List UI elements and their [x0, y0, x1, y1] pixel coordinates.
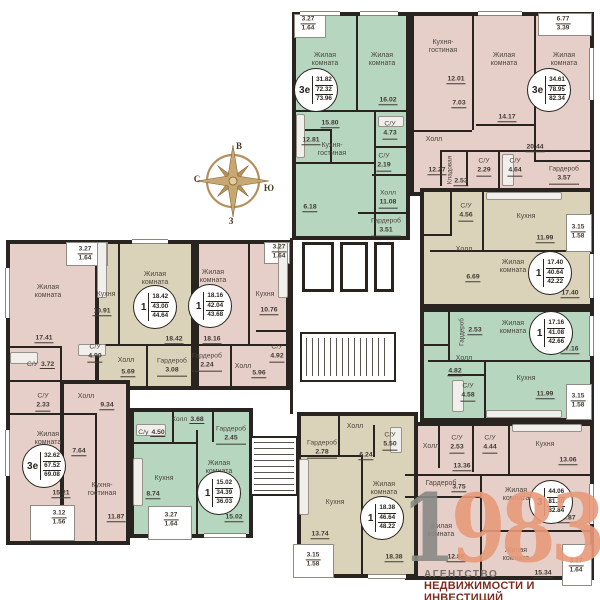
room-area: 15.21	[51, 489, 70, 498]
window	[478, 11, 522, 16]
elevator-shaft	[340, 242, 368, 292]
balcony-area-top: 3.12	[52, 509, 67, 518]
room-label: Гардероб2.24	[192, 353, 222, 372]
balcony-area-top: 3.27	[164, 511, 179, 520]
area-total: 42.66	[547, 337, 565, 347]
apartment-type: 1	[141, 302, 147, 313]
area-usable: 43.00	[151, 302, 169, 312]
wall	[146, 346, 148, 390]
room-name: Холл	[171, 416, 187, 423]
room-area: 16.02	[378, 96, 397, 105]
room-label: С/У3.72	[27, 361, 55, 369]
balcony-area-bottom: 1.58	[571, 233, 586, 241]
room-name: Гардероб	[307, 440, 337, 449]
room-area: 4.50	[150, 429, 165, 437]
area-total: 73.96	[315, 94, 333, 104]
balcony-area-top: 3.27	[569, 557, 584, 566]
balcony-area: 3.271.64	[569, 557, 584, 574]
room-name: С/У	[449, 435, 464, 444]
area-usable: 42.04	[206, 301, 224, 311]
apartment-type: 1	[537, 328, 543, 339]
room-label: Жилая комната	[358, 52, 406, 68]
balcony-area: 3.151.58	[306, 551, 321, 568]
wall	[405, 496, 482, 498]
room-name: Гардероб	[216, 426, 246, 435]
room-label: Жилая комната	[360, 481, 408, 497]
room-name: Гардероб	[549, 166, 579, 175]
room-label: С/У4.44	[482, 435, 497, 454]
window	[589, 316, 594, 356]
compass-label-left: С	[194, 174, 201, 184]
room-label: С/У2.53	[449, 435, 464, 454]
apartment-info-circle: 118.3846.6448.22	[360, 496, 404, 540]
wall	[230, 346, 232, 390]
balcony-area: 3.151.58	[571, 392, 586, 409]
room-label: Холл	[118, 357, 135, 365]
wall	[130, 442, 198, 444]
room-label: Гардероб	[458, 318, 465, 346]
wall	[410, 130, 472, 132]
balcony-area-bottom: 1.64	[301, 25, 316, 33]
room-area: 2.53	[453, 177, 468, 186]
room-name: С/У	[460, 383, 475, 392]
area-total: 48.22	[378, 522, 396, 532]
apartment-info-circle: 118.1642.0443.68	[188, 284, 232, 328]
apartment-type: 3е	[27, 461, 38, 472]
wall	[338, 412, 340, 457]
elevator-shaft	[374, 242, 394, 292]
apartment-type: 1	[536, 268, 542, 279]
apartment-info-circle: 3е31.8272.3273.96	[294, 68, 338, 112]
apartment-info-circle: 3е32.6267.5269.08	[22, 444, 66, 488]
area-total: 44.64	[151, 311, 169, 321]
room-area: 13.06	[558, 456, 577, 465]
room-label: Кухня	[517, 213, 536, 221]
room-area: 6.24	[358, 451, 373, 460]
wall	[374, 146, 406, 148]
room-label: Кухня	[97, 291, 116, 299]
wall	[372, 174, 406, 176]
area-total: 42.22	[546, 277, 564, 287]
area-living: 44.06	[547, 488, 565, 497]
wall	[358, 212, 408, 214]
balcony-area-bottom: 1.64	[272, 253, 287, 261]
logo-agency-line2: НЕДВИЖИМОСТИ И ИНВЕСТИЦИЙ	[424, 580, 600, 600]
balcony-area-bottom: 1.64	[164, 521, 179, 529]
room-label: Кухня	[536, 441, 555, 449]
room-area: 4.82	[447, 367, 462, 376]
wall	[480, 530, 594, 532]
room-area: 11.99	[536, 234, 555, 243]
balcony-area: 3.271.64	[164, 511, 179, 528]
room-area: 2.53	[467, 326, 482, 335]
room-area: 14.17	[497, 113, 516, 122]
area-total: 82.34	[548, 94, 566, 104]
room-area: 20.44	[525, 143, 544, 152]
kitchen-counter	[486, 192, 562, 200]
wall	[248, 240, 250, 346]
room-label: Гардероб3.08	[157, 358, 187, 377]
area-usable: 67.52	[43, 461, 61, 471]
room-area: 13.36	[452, 462, 471, 471]
apartment-type: 3	[537, 497, 543, 508]
compass-label-bottom: З	[229, 216, 234, 226]
balcony-area: 3.121.56	[52, 509, 67, 526]
balcony-area: 3.271.64	[78, 245, 93, 262]
balcony-area-top: 3.27	[272, 243, 287, 252]
floor-plan: Жилая комната Жилая комната 16.02 Кухня-…	[0, 0, 600, 600]
apartment-type: 1	[205, 488, 211, 499]
kitchen-counter	[512, 424, 582, 432]
room-name: С/У	[382, 121, 397, 130]
room-area: 4.44	[482, 444, 497, 454]
wall	[6, 413, 96, 415]
wall	[498, 150, 500, 190]
room-area: 15.02	[224, 513, 243, 522]
room-label: Кухня-гостиная	[78, 482, 126, 498]
room-area: 2.29	[476, 167, 491, 177]
room-area: 18.38	[384, 553, 403, 562]
window	[132, 239, 168, 244]
room-name: Гардероб	[371, 218, 401, 227]
wall	[508, 422, 510, 476]
wall	[480, 476, 482, 580]
apartment-info-circle: 117.1641.0842.66	[529, 311, 573, 355]
window	[204, 533, 246, 538]
compass-label-top: В	[236, 141, 242, 151]
area-usable: 81.20	[547, 497, 565, 507]
room-area: 2.45	[216, 435, 246, 445]
room-area: 18.42	[164, 335, 183, 344]
room-area: 11.87	[107, 513, 126, 522]
apartment-info-circle: 118.4243.0044.64	[133, 285, 177, 329]
compass-label-right: Ю	[264, 183, 274, 193]
room-area: 17.40	[560, 289, 579, 298]
room-label: Жилая комната	[480, 52, 528, 68]
room-label: Гардероб2.78	[307, 440, 337, 459]
window	[360, 11, 398, 16]
area-total: 43.68	[206, 310, 224, 320]
balcony-area-bottom: 3.39	[556, 25, 571, 33]
room-label: Гардероб3.57	[549, 166, 579, 185]
room-area: 3.68	[189, 416, 204, 424]
room-label: Жилая комната	[492, 547, 540, 563]
room-name: С/У	[35, 393, 50, 402]
window	[368, 574, 406, 579]
room-area: 15.80	[320, 119, 339, 128]
window	[589, 484, 594, 524]
area-living: 17.40	[546, 259, 564, 268]
balcony-area-top: 6.77	[556, 15, 571, 24]
wall	[440, 150, 594, 152]
apartment-info-circle: 117.4040.6442.22	[528, 251, 572, 295]
balcony-area-top: 3.15	[571, 223, 586, 232]
room-area: 7.03	[451, 99, 466, 108]
room-label: Холл	[426, 136, 443, 144]
room-area: 6.69	[465, 273, 480, 282]
room-label: Гардероб3.51	[371, 218, 401, 237]
room-label: Холл3.68	[171, 416, 204, 424]
area-total: 82.84	[547, 506, 565, 516]
room-area: 9.34	[99, 401, 114, 410]
room-area: 6.18	[302, 203, 317, 212]
balcony-area-bottom: 1.64	[569, 567, 584, 575]
wall	[472, 13, 474, 130]
room-label: Жилая комната	[24, 284, 72, 300]
area-usable: 46.64	[378, 513, 396, 523]
room-label: Жилая комната	[301, 52, 349, 68]
wall	[450, 190, 452, 236]
room-area: 11.08	[379, 199, 398, 209]
balcony-area-bottom: 1.64	[78, 255, 93, 263]
wall	[428, 360, 594, 362]
room-label: Жилая комната	[189, 269, 237, 285]
room-name: С/У	[269, 344, 284, 353]
room-area: 12.27	[427, 166, 446, 175]
wall	[448, 308, 450, 362]
area-usable: 41.08	[547, 328, 565, 338]
wall	[256, 330, 290, 332]
room-label: Жилая комната	[540, 52, 588, 68]
room-area: 3.72	[40, 361, 55, 369]
room-name: С/У	[27, 361, 38, 368]
room-area: 12.01	[446, 75, 465, 84]
area-living: 15.02	[215, 479, 233, 488]
room-name: С/У	[376, 153, 391, 162]
room-label: С/У4.58	[460, 383, 475, 402]
room-label: Жилая комната	[417, 523, 465, 539]
room-name: С/У	[382, 432, 397, 441]
apartment-type: 1	[196, 301, 202, 312]
logo-agency-line1: АГЕНТСТВО	[424, 569, 498, 580]
apartment-type: 3е	[299, 85, 310, 96]
room-name: С/У	[482, 435, 497, 444]
room-label: С/У2.33	[35, 393, 50, 412]
room-name: С/У	[87, 344, 102, 353]
room-area: 8.74	[145, 490, 160, 499]
room-label: Кухня	[155, 475, 174, 483]
room-area: 11.99	[536, 390, 555, 399]
apartment-info-circle: 344.0681.2082.84	[529, 480, 573, 524]
area-living: 17.16	[547, 319, 565, 328]
room-label: Кухня	[326, 499, 345, 507]
area-total: 36.03	[215, 497, 233, 507]
room-area: 4.92	[269, 353, 284, 363]
apartment-info-circle: 115.0234.3936.03	[197, 471, 241, 515]
area-living: 32.62	[43, 452, 61, 461]
kitchen-counter	[299, 459, 309, 515]
wall	[212, 410, 214, 442]
wall	[482, 188, 484, 252]
room-area: 7.64	[71, 447, 86, 456]
balcony-area-top: 3.15	[571, 392, 586, 401]
room-area: 15.34	[533, 569, 552, 578]
room-area: 4.73	[382, 130, 397, 140]
apartment-type: 3е	[532, 85, 543, 96]
compass-rose-icon	[196, 142, 272, 220]
room-area: 12.81	[301, 136, 320, 145]
room-area: 2.33	[35, 402, 50, 412]
wall	[172, 410, 174, 442]
window	[5, 268, 10, 318]
window	[589, 254, 594, 298]
balcony-area: 3.271.64	[301, 15, 316, 32]
room-area: 4.56	[458, 212, 473, 222]
wall	[60, 346, 62, 382]
area-usable: 40.64	[546, 268, 564, 278]
balcony-area: 3.271.64	[272, 243, 287, 260]
room-area: 3.08	[157, 367, 187, 377]
area-living: 18.16	[206, 292, 224, 301]
room-label: С/у4.50	[138, 429, 165, 437]
room-area: 4.58	[460, 392, 475, 402]
wall	[95, 413, 97, 545]
room-label: Холл	[347, 423, 364, 431]
room-area: 2.53	[449, 444, 464, 454]
room-label: Холл	[235, 363, 252, 371]
room-name: Гардероб	[157, 358, 187, 367]
room-label: С/У4.73	[382, 121, 397, 140]
room-area: 3.57	[549, 175, 579, 185]
kitchen-counter	[486, 410, 562, 418]
wall	[118, 240, 120, 346]
staircase-treads	[306, 338, 390, 376]
balcony-area: 3.151.58	[571, 223, 586, 240]
area-usable: 34.39	[215, 488, 233, 498]
room-area: 5.50	[382, 441, 397, 451]
room-label: Кухня	[256, 291, 275, 299]
area-living: 18.38	[378, 504, 396, 513]
balcony-area-bottom: 1.58	[306, 561, 321, 569]
window	[589, 48, 594, 100]
room-label: Кухня	[517, 375, 536, 383]
balcony-area-top: 3.15	[306, 551, 321, 560]
room-label: Кухня-гостиная	[419, 39, 467, 55]
room-label: Холл	[423, 443, 440, 451]
room-area: 18.16	[202, 335, 221, 344]
wall	[476, 124, 534, 126]
apartment-info-circle: 3е34.6178.9582.34	[527, 68, 571, 112]
room-label: С/У5.50	[382, 432, 397, 451]
area-usable: 78.95	[548, 85, 566, 95]
room-area: 3.51	[371, 227, 401, 237]
room-area: 3.75	[451, 483, 466, 492]
room-area: 2.24	[192, 362, 222, 372]
window	[5, 430, 10, 476]
room-label: С/У4.90	[87, 344, 102, 363]
room-area: 2.78	[307, 449, 337, 459]
wall	[420, 344, 450, 346]
room-label: С/У4.56	[458, 203, 473, 222]
room-name: С/У	[476, 158, 491, 167]
room-label: Гардероб2.45	[216, 426, 246, 445]
room-label: С/У2.29	[476, 158, 491, 177]
balcony-area-bottom: 1.56	[52, 519, 67, 527]
kitchen-counter	[133, 458, 143, 506]
balcony-area-top: 3.27	[78, 245, 93, 254]
room-label: Холл11.08	[379, 190, 398, 209]
area-living: 31.82	[315, 76, 333, 85]
room-area: 5.69	[120, 368, 135, 377]
room-name: С/у	[138, 429, 148, 436]
room-area: 5.96	[251, 369, 266, 378]
room-area: 13.74	[310, 530, 329, 539]
room-area: 10.76	[259, 306, 278, 315]
room-label: Холл	[456, 355, 473, 363]
room-area: 17.41	[34, 334, 53, 343]
area-living: 34.61	[548, 76, 566, 85]
area-living: 18.42	[151, 293, 169, 302]
room-area: 12.86	[446, 553, 465, 562]
staircase-treads	[254, 441, 294, 491]
room-label: Холл	[78, 393, 95, 401]
room-name: Гардероб	[192, 353, 222, 362]
room-area: 2.19	[376, 162, 391, 172]
balcony-area-top: 3.27	[301, 15, 316, 24]
wall	[420, 234, 452, 236]
room-name: С/У	[507, 158, 522, 167]
room-label: С/У4.92	[269, 344, 284, 363]
room-area: 10.91	[92, 307, 111, 316]
wall	[472, 424, 474, 472]
kitchen-counter	[97, 242, 107, 298]
balcony-area-bottom: 1.58	[571, 402, 586, 410]
room-area: 4.90	[87, 353, 102, 363]
room-name: С/У	[458, 203, 473, 212]
wall	[294, 162, 374, 164]
room-area: 4.64	[507, 167, 522, 177]
wall	[6, 346, 62, 348]
elevator-shaft	[302, 242, 334, 292]
room-label: Холл	[456, 246, 473, 254]
room-label: С/У4.64	[507, 158, 522, 177]
area-total: 69.08	[43, 470, 61, 480]
apartment-type: 1	[368, 513, 374, 524]
wall	[405, 474, 594, 476]
wall	[290, 238, 293, 414]
room-name: Холл	[379, 190, 398, 199]
balcony-area: 6.773.39	[556, 15, 571, 32]
wall	[536, 160, 594, 162]
area-usable: 72.32	[315, 85, 333, 95]
room-label: С/У2.19	[376, 153, 391, 172]
